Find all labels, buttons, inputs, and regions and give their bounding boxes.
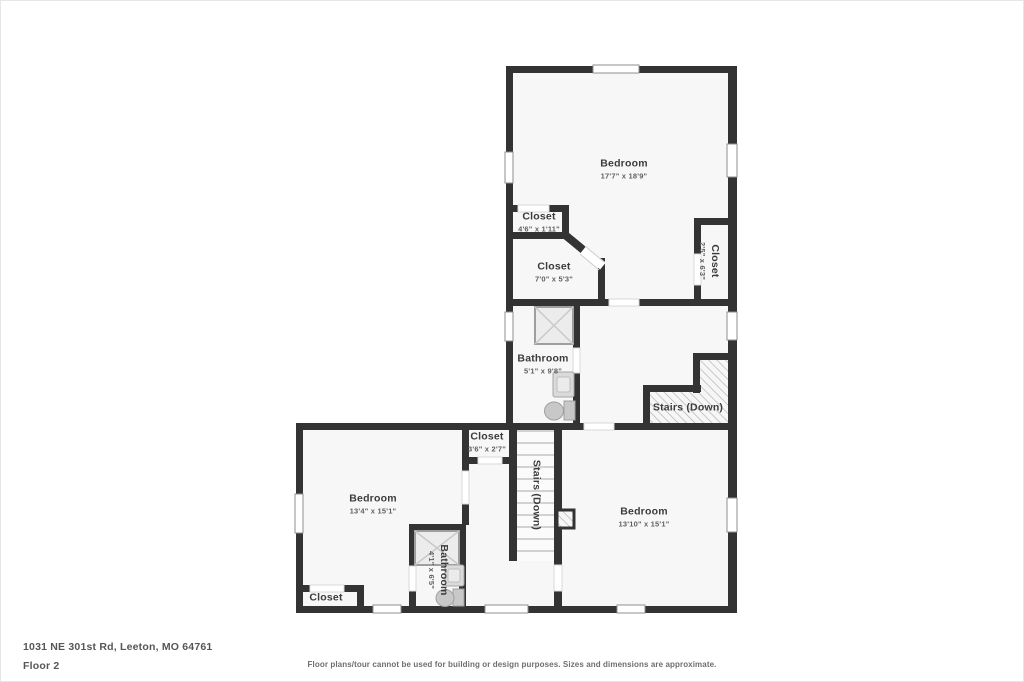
room-label-closet-hall: Closet 3'6" x 2'7" — [468, 430, 506, 454]
room-label-bedroom-left: Bedroom 13'4" x 15'1" — [349, 492, 397, 516]
floorplan-page: Bedroom 17'7" x 18'9" Closet 4'6" x 1'11… — [0, 0, 1024, 682]
room-label-closet-top-mid: Closet 7'0" x 5'3" — [535, 260, 573, 284]
chimney-block — [557, 510, 574, 528]
room-name: Stairs (Down) — [653, 401, 723, 414]
room-label-closet-top-right: Closet 2'5" x 6'3" — [697, 242, 721, 280]
room-dims: 13'4" x 15'1" — [349, 506, 397, 515]
room-name: Closet — [468, 430, 506, 443]
room-name: Closet — [535, 260, 573, 273]
shower-fixture — [535, 307, 573, 344]
room-label-bathroom-lower: Bathroom 4'1" x 6'5" — [426, 544, 450, 595]
disclaimer-text: Floor plans/tour cannot be used for buil… — [308, 660, 717, 669]
room-name: Closet — [708, 242, 721, 280]
room-dims: 2'5" x 6'3" — [697, 242, 706, 280]
room-dims: 13'10" x 15'1" — [618, 519, 669, 528]
room-name: Bathroom — [437, 544, 450, 595]
room-dims: 4'6" x 1'11" — [518, 224, 560, 233]
room-dims: 5'1" x 9'8" — [517, 366, 568, 375]
room-label-stairs-lower: Stairs (Down) — [529, 460, 542, 530]
room-label-bedroom-top: Bedroom 17'7" x 18'9" — [600, 157, 648, 181]
toilet-fixture — [545, 401, 576, 420]
sink-fixture — [553, 372, 574, 397]
room-name: Stairs (Down) — [529, 460, 542, 530]
floor-plan-drawing — [1, 1, 1024, 682]
room-name: Bathroom — [517, 352, 568, 365]
room-label-closet-bottom-left: Closet — [309, 591, 342, 604]
room-label-stairs-upper: Stairs (Down) — [653, 401, 723, 414]
room-name: Bedroom — [600, 157, 648, 170]
room-label-bedroom-right: Bedroom 13'10" x 15'1" — [618, 505, 669, 529]
room-dims: 3'6" x 2'7" — [468, 444, 506, 453]
room-name: Closet — [518, 210, 560, 223]
floor-label: Floor 2 — [23, 660, 59, 672]
room-name: Closet — [309, 591, 342, 604]
room-label-bathroom-upper: Bathroom 5'1" x 9'8" — [517, 352, 568, 376]
room-name: Bedroom — [349, 492, 397, 505]
room-name: Bedroom — [618, 505, 669, 518]
room-dims: 4'1" x 6'5" — [426, 544, 435, 595]
address-text: 1031 NE 301st Rd, Leeton, MO 64761 — [23, 641, 212, 653]
room-label-closet-top-small: Closet 4'6" x 1'11" — [518, 210, 560, 234]
room-dims: 17'7" x 18'9" — [600, 171, 648, 180]
room-dims: 7'0" x 5'3" — [535, 274, 573, 283]
